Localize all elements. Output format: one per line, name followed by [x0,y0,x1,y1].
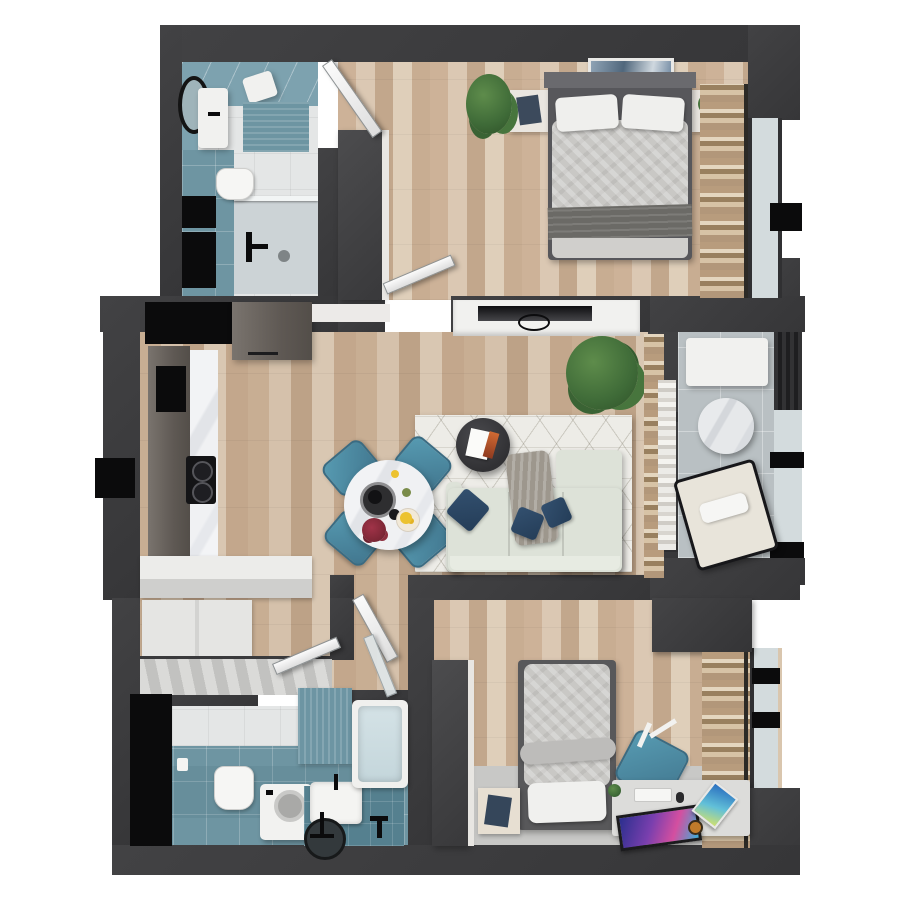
wall-left-top [160,25,182,298]
entry-wardrobe-white [142,600,252,656]
floor-plan-render [0,0,900,900]
kitchen-cabinet-handle [248,352,278,355]
plant-living-large [566,336,638,410]
bathtub-faucet-stem [377,816,382,838]
balcony-table [698,398,754,454]
balcony-railing-glass [774,410,802,558]
fruit-lemons [400,512,412,524]
vanity-faucet [208,112,220,116]
washing-machine-drum [274,790,306,822]
plate-mug [368,490,382,504]
bath-mat [243,102,309,152]
washing-machine-panel [266,790,273,795]
kitchen-lower-counter [140,556,312,598]
balcony-louver-panel [774,332,802,410]
bedroom-main-wardrobe [338,130,382,300]
towel-teal-hanging [298,688,352,764]
toilet-bottom [214,766,254,810]
keyboard [634,788,672,802]
mouse [676,792,684,803]
wall-stub-corridor [330,575,354,600]
round-basin [304,818,346,860]
bed-main-pillow-left [555,94,619,132]
toilet-top [216,168,254,200]
wall-living-bedroom2 [408,575,650,600]
wall-right-top [748,25,800,120]
wall-top [160,25,800,62]
toilet-paper [177,758,188,771]
wall-bottom [112,845,800,875]
book-on-nightstand [516,95,542,126]
flower-bouquet [362,518,386,542]
bed2-pillow [527,781,606,824]
kitchen-console-black [145,302,232,344]
bedroom2-wardrobe-corner [652,598,752,652]
wall-right-bottom-corner-block [650,558,800,600]
tv-stand-oval [518,314,550,331]
bed-main-throw [548,204,693,240]
balcony-bench [686,338,768,386]
cooktop-burner-2 [192,482,213,503]
cooktop-burner-1 [192,461,213,482]
clothes-rack-main [700,84,748,298]
window-bracket-br-2 [752,712,780,728]
wall-bath2-bedroom2 [408,598,434,848]
lemon-single [391,470,399,478]
bathroom-top-cabinet-2 [182,232,216,288]
window-bracket-br-1 [752,668,780,684]
kitchen-oven [156,366,186,412]
bedroom2-wardrobe-left-edge [468,660,474,846]
plant-bedroom-corner [466,74,512,134]
round-basin-faucet-bar [310,834,334,838]
desk-plant [608,784,621,797]
balcony-railing-post-1 [770,452,804,468]
desk-lamp [688,820,703,835]
bed-main-duvet-foot [552,238,688,258]
shower-arm [246,244,268,249]
shower-drain [278,250,290,262]
wall-left-middle [103,296,140,600]
entry-tall-cabinet [130,694,172,846]
curtain-sheer [658,380,676,550]
bathtub-interior [358,706,402,782]
clothes-rack-rail [744,84,748,298]
sink-faucet [334,774,338,790]
bedroom2-wardrobe-left [432,660,468,846]
vanity-sink [198,88,228,148]
kitchen-wall-shelf [312,304,390,322]
book-bedroom2 [484,794,512,827]
wall-balcony-top [650,296,805,332]
bedroom-main-wardrobe-edge [382,130,389,300]
window-bracket-top-right [770,203,802,231]
bathroom-top-cabinet-1 [182,196,216,228]
window-box-left [95,458,135,498]
green-cup [402,488,411,497]
bed-main-pillow-right [621,94,685,132]
bed2-duvet [524,664,610,786]
bed-main-headboard [544,72,696,88]
wall-bathroom-top-right [318,148,340,298]
sofa-back-edge [450,556,620,570]
